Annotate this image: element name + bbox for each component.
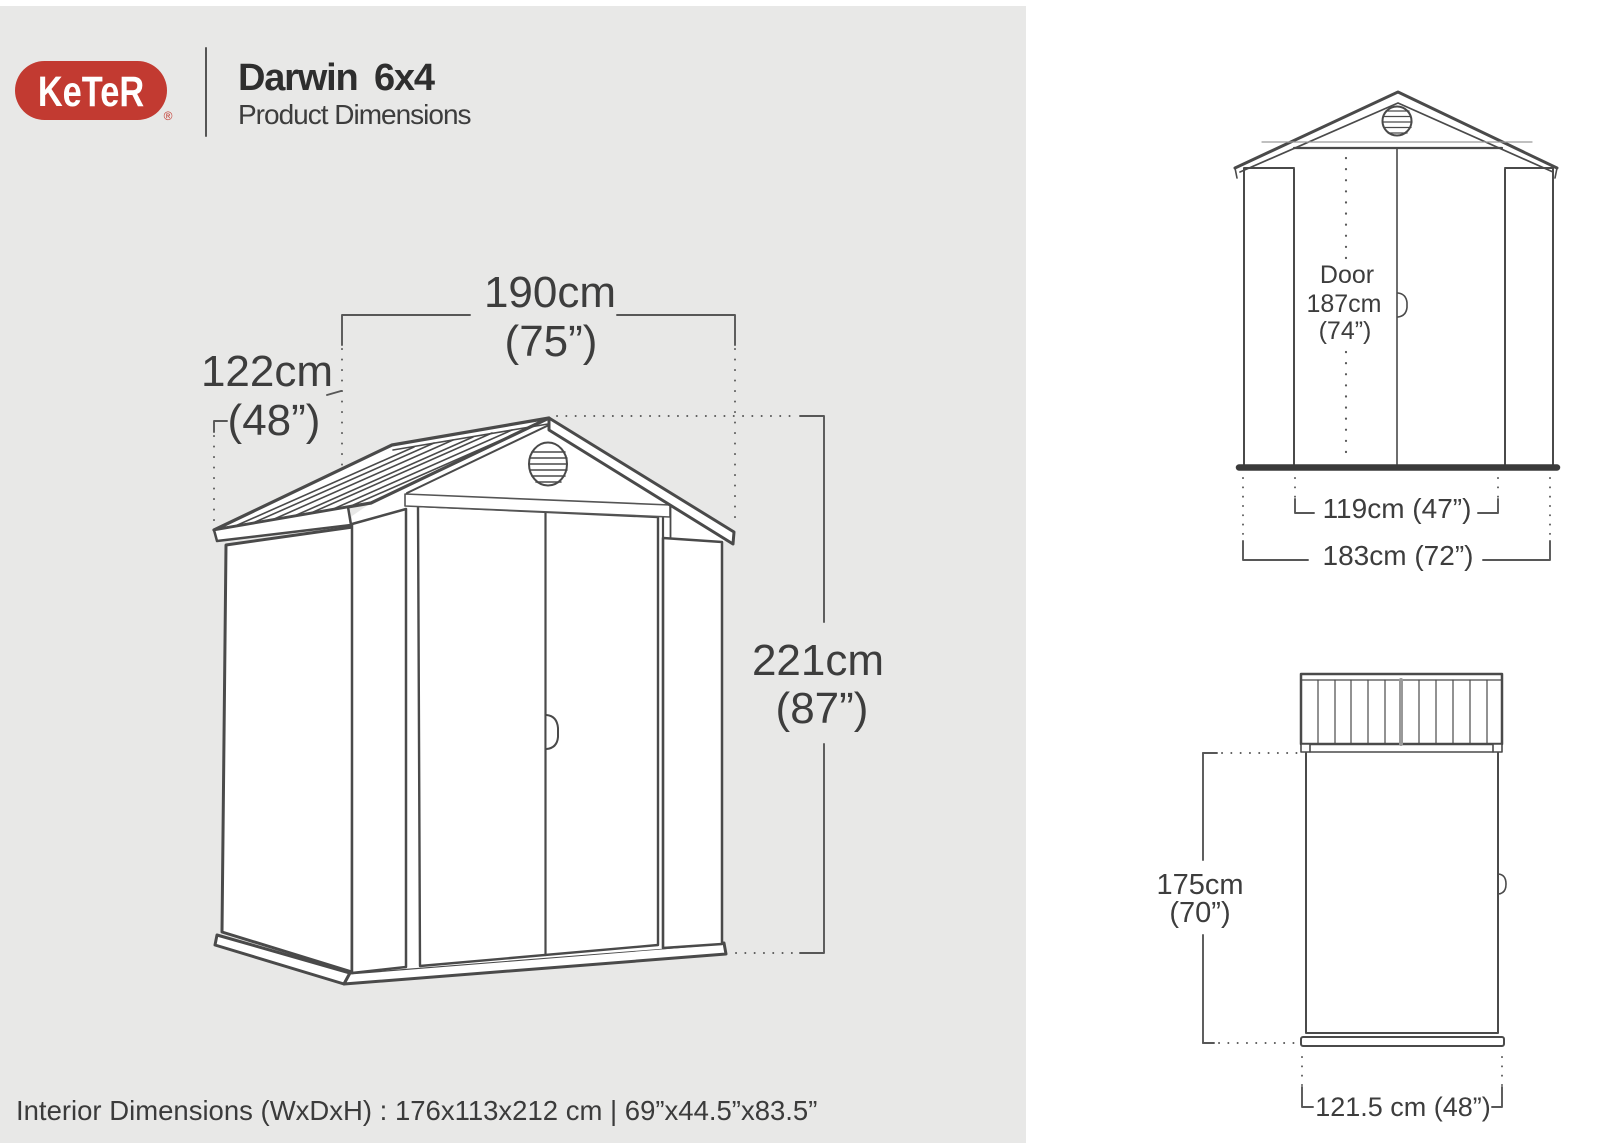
- svg-text:Door: Door: [1320, 261, 1374, 289]
- svg-text:(87”): (87”): [776, 684, 869, 733]
- svg-text:(74”): (74”): [1319, 317, 1372, 345]
- svg-text:Darwin6x4: Darwin6x4: [238, 57, 435, 99]
- svg-text:(75”): (75”): [505, 317, 598, 366]
- svg-text:187cm: 187cm: [1306, 290, 1381, 318]
- svg-text:121.5 cm (48”): 121.5 cm (48”): [1315, 1092, 1491, 1122]
- svg-text:Product Dimensions: Product Dimensions: [238, 99, 471, 130]
- svg-text:(48”): (48”): [228, 396, 321, 445]
- svg-text:122cm: 122cm: [201, 347, 333, 396]
- svg-text:Interior Dimensions (WxDxH) :: Interior Dimensions (WxDxH) : 176x113x21…: [16, 1095, 817, 1126]
- svg-text:®: ®: [164, 109, 173, 123]
- svg-text:KeTeR: KeTeR: [38, 68, 144, 115]
- svg-text:(70”): (70”): [1169, 897, 1230, 929]
- svg-text:119cm (47”): 119cm (47”): [1323, 493, 1472, 524]
- svg-text:183cm (72”): 183cm (72”): [1323, 540, 1474, 571]
- svg-text:190cm: 190cm: [484, 268, 616, 317]
- svg-text:221cm: 221cm: [752, 636, 884, 685]
